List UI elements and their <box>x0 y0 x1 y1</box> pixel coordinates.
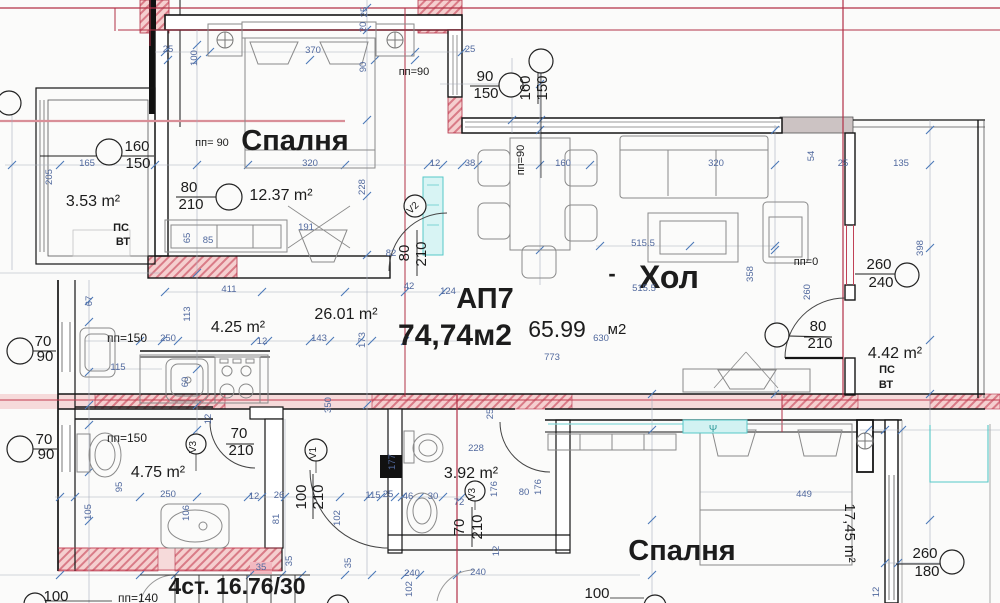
dim-label-114: 46 <box>403 491 414 502</box>
dim-label-59: 100 <box>584 585 609 602</box>
dim-label-30: пп=90 <box>399 66 430 78</box>
dim-label-86: 398 <box>915 240 926 256</box>
dim-label-98: 630 <box>593 333 609 344</box>
dim-label-61: 370 <box>305 45 321 56</box>
living-top-wall <box>462 118 782 133</box>
dim-label-128: 35 <box>343 558 354 569</box>
dim-label-51: 210 <box>310 484 327 509</box>
dim-label-107: 106 <box>181 505 192 521</box>
rect-shape <box>845 358 855 395</box>
bathroom-right-wall <box>265 419 283 548</box>
window-tag-70-90 <box>7 338 33 364</box>
net-area-value: 65.99 <box>528 316 586 342</box>
dim-label-89: 411 <box>221 284 236 295</box>
dim-label-39: 210 <box>807 335 832 352</box>
stairs-label: 4ст. 16.76/30 <box>168 573 305 599</box>
apartment-id: АП7 <box>456 283 514 315</box>
dim-label-125: 102 <box>404 581 415 597</box>
dim-label-83: 54 <box>806 151 817 162</box>
dim-label-115: 30 <box>428 491 439 502</box>
dim-label-104: 95 <box>114 482 125 493</box>
dim-label-109: 26 <box>274 490 285 501</box>
dim-label-66: 90 <box>358 62 369 73</box>
dim-label-53: 70 <box>451 519 468 536</box>
rect-shape <box>148 256 237 278</box>
dim-label-74: 65 <box>182 233 193 244</box>
dim-label-117: 228 <box>468 443 484 454</box>
dim-label-18: ВТ <box>116 236 131 248</box>
dim-label-48: 210 <box>228 442 253 459</box>
rect-shape <box>780 117 853 133</box>
dim-label-41: пп=150 <box>107 431 147 445</box>
axis-circle <box>0 91 21 115</box>
dim-label-95: 42 <box>404 281 415 292</box>
dim-label-96: 124 <box>440 286 456 297</box>
dim-label-21: 160 <box>124 138 149 155</box>
dim-label-99: 115 <box>110 362 125 373</box>
dim-label-43: 90 <box>37 348 54 365</box>
dim-label-70: 228 <box>357 179 368 195</box>
dim-label-93: 143 <box>311 333 327 344</box>
dim-label-119: 176 <box>533 479 544 495</box>
rect-shape <box>930 394 1000 409</box>
dim-label-130: 12 <box>871 587 882 598</box>
rect-shape <box>59 425 74 472</box>
rect-shape <box>372 394 572 409</box>
floor-plan-svg: СпалняХол-СпалняАП774,74м265.99м24ст. 16… <box>0 0 1000 603</box>
dim-label-73: 85 <box>203 235 214 246</box>
dim-label-121: 25 <box>485 409 496 420</box>
dim-label-65: 20 <box>358 22 369 33</box>
dim-label-127: 35 <box>284 556 295 567</box>
dim-label-47: 70 <box>231 425 248 442</box>
room-label-bedroom-top: Спалня <box>241 125 348 157</box>
dim-label-31: пп=90 <box>515 145 527 176</box>
dim-label-110: 81 <box>271 514 282 525</box>
window-tag-160-150 <box>529 49 553 73</box>
dim-label-55: 260 <box>912 545 937 562</box>
dim-label-113: 25 <box>383 489 394 500</box>
dim-label-111: 102 <box>332 510 343 526</box>
area-balcony-left: 3.53 m² <box>66 193 121 210</box>
dim-label-118: 176 <box>489 481 500 497</box>
dim-label-85: 135 <box>893 158 909 169</box>
dim-label-108: 12 <box>249 491 260 502</box>
opening-tag-260-240 <box>895 263 919 287</box>
room-label-bedroom-bottom: Спалня <box>628 535 735 567</box>
dim-label-78: 160 <box>555 158 571 169</box>
dim-label-24: 210 <box>178 196 203 213</box>
dash-before-living: - <box>608 261 615 286</box>
dim-label-102: 350 <box>323 397 334 413</box>
wc-right-wall <box>556 420 570 553</box>
dim-label-58: 100 <box>43 588 68 603</box>
dim-label-23: 80 <box>181 179 198 196</box>
dim-label-94: 173 <box>357 332 368 348</box>
dim-label-67: 25 <box>465 44 476 55</box>
dim-label-120: 80 <box>519 487 530 498</box>
dim-label-92: 12 <box>257 336 268 347</box>
dim-label-28: 160 <box>517 75 534 100</box>
dim-label-79: 515.5 <box>631 238 655 249</box>
dim-label-26: 90 <box>477 68 494 85</box>
dim-label-38: 80 <box>810 318 827 335</box>
dim-label-112: 115 <box>365 490 380 501</box>
dim-label-91: 250 <box>160 333 176 344</box>
dim-label-122: 12 <box>491 546 502 557</box>
wc-left-wall <box>388 409 402 553</box>
rect-shape <box>250 407 283 419</box>
dim-label-50: 100 <box>293 484 310 509</box>
dim-label-88: 67 <box>84 296 95 307</box>
dim-label-22: 150 <box>125 155 150 172</box>
window-tag-70-90 <box>7 436 33 462</box>
apartment-total-area: 74,74м2 <box>398 319 512 352</box>
dim-label-116: 72 <box>454 497 465 508</box>
dim-label-105: 105 <box>83 504 94 520</box>
dim-label-54: 210 <box>469 514 486 539</box>
dim-label-103: 177 <box>387 454 398 470</box>
dim-label-35: пп=0 <box>794 256 818 268</box>
door-tag-80-210 <box>765 323 789 347</box>
area-balcony-right: 4.42 m² <box>868 345 923 362</box>
rect-shape <box>58 548 158 571</box>
dim-label-76: 12 <box>430 158 441 169</box>
rect-shape <box>59 322 74 372</box>
dim-label-101: 12 <box>203 414 214 425</box>
dim-label-45: 90 <box>38 446 55 463</box>
dim-label-97: 773 <box>544 352 560 363</box>
dim-label-20: ВТ <box>879 379 894 391</box>
dim-label-52: V3 <box>467 487 478 500</box>
bedroom-right-wall <box>448 30 462 97</box>
rect-shape <box>782 394 858 409</box>
dim-label-27: 150 <box>473 85 498 102</box>
dim-label-123: 240 <box>470 567 486 578</box>
dim-label-100: 60 <box>180 377 191 388</box>
dim-label-80: 515.5 <box>632 283 656 294</box>
area-kitchen: 4.25 m² <box>211 319 266 336</box>
dim-label-72: 191 <box>298 222 314 233</box>
rect-shape <box>448 97 462 133</box>
dim-label-64: 25 <box>359 7 370 18</box>
dim-label-40: пп=150 <box>107 331 147 345</box>
dim-label-124: 240 <box>404 568 420 579</box>
window-tag-160-150 <box>96 139 122 165</box>
rect-shape <box>845 285 855 300</box>
area-bedroom-bottom: 17,45 m² <box>841 503 858 562</box>
dim-label-57: пп=140 <box>118 591 158 603</box>
area-bathroom: 4.75 m² <box>131 464 186 481</box>
area-bedroom-top: 12.37 m² <box>249 187 313 204</box>
area-wc: 3.92 m² <box>444 465 499 482</box>
dim-label-82: 320 <box>708 158 724 169</box>
area-corridor: 26.01 m² <box>314 306 378 323</box>
dim-label-75: 82 <box>386 248 397 259</box>
dim-label-29: 150 <box>534 75 551 100</box>
dim-label-36: 260 <box>866 256 891 273</box>
dim-label-46: V3 <box>188 440 199 453</box>
dim-label-19: ПС <box>879 364 895 376</box>
dim-label-32: 80 <box>396 245 413 262</box>
dim-label-63: 100 <box>189 50 200 66</box>
dim-label-129: 449 <box>796 489 812 500</box>
bedroom-left-wall <box>155 30 168 256</box>
dim-label-90: 113 <box>182 306 193 321</box>
dim-label-56: 180 <box>914 563 939 580</box>
dim-label-69: 205 <box>44 169 55 185</box>
dim-label-68: 165 <box>79 158 95 169</box>
dim-label-62: 25 <box>163 44 174 55</box>
dim-label-37: 240 <box>868 274 893 291</box>
dim-label-106: 250 <box>160 489 176 500</box>
dim-label-126: 35 <box>256 562 267 573</box>
door-tag-80-210 <box>216 184 242 210</box>
dim-label-84: 25 <box>838 158 849 169</box>
fan-symbol: Ψ <box>709 424 717 435</box>
dim-label-81: 358 <box>745 266 756 282</box>
dim-label-71: 320 <box>302 158 318 169</box>
living-right-wall <box>845 133 855 225</box>
floor-plan-document: СпалняХол-СпалняАП774,74м265.99м24ст. 16… <box>0 0 1000 603</box>
dim-label-77: 38 <box>465 158 476 169</box>
dim-label-33: 210 <box>413 241 430 266</box>
rect-shape <box>886 475 897 600</box>
dim-label-87: 260 <box>802 284 813 300</box>
dim-label-49: V1 <box>308 446 319 459</box>
window-tag-260-180 <box>940 550 964 574</box>
net-area-unit: м2 <box>608 321 627 338</box>
dim-label-17: ПС <box>113 222 129 234</box>
dim-label-25: пп= 90 <box>195 137 229 149</box>
